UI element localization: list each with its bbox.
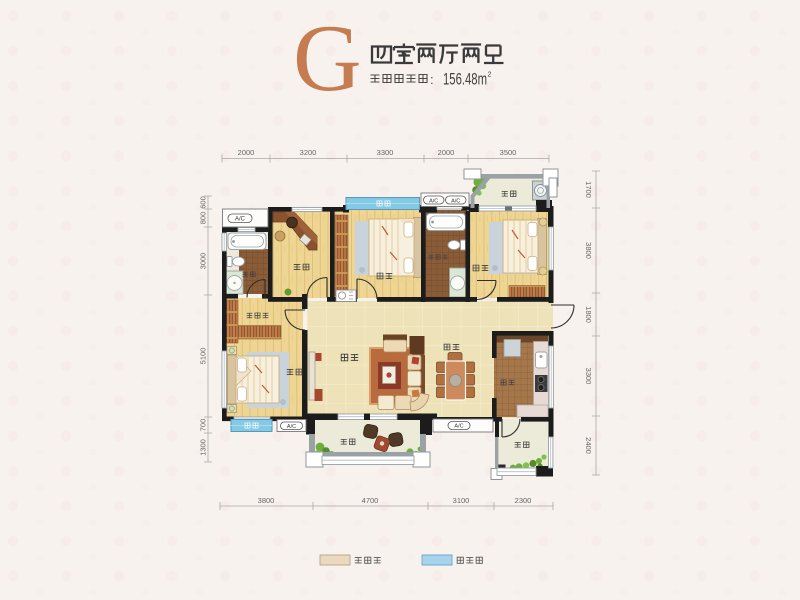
svg-text:600: 600 [199,196,208,209]
svg-text:5100: 5100 [199,348,208,365]
svg-text::: : [430,72,434,87]
svg-text:2000: 2000 [238,148,255,157]
svg-text:3200: 3200 [300,148,317,157]
svg-text:4700: 4700 [362,496,379,505]
svg-text:A/C: A/C [429,198,438,204]
svg-text:3800: 3800 [258,496,275,505]
svg-text:3300: 3300 [584,368,593,385]
svg-text:2: 2 [488,72,492,79]
svg-text:A/C: A/C [235,217,246,223]
svg-text:A/C: A/C [451,198,460,204]
svg-text:3000: 3000 [199,253,208,270]
svg-text:1700: 1700 [584,181,593,198]
svg-text:2300: 2300 [515,496,532,505]
svg-text:1300: 1300 [199,439,208,456]
svg-text:800: 800 [199,212,208,225]
svg-text:700: 700 [199,419,208,432]
svg-text:1800: 1800 [584,306,593,323]
svg-text:3100: 3100 [453,496,470,505]
svg-text:3800: 3800 [584,242,593,259]
svg-text:A/C: A/C [287,424,296,430]
svg-text:3300: 3300 [377,148,394,157]
svg-text:A/C: A/C [454,424,463,430]
svg-text:2000: 2000 [438,148,455,157]
svg-text:G: G [293,5,362,111]
svg-text:3500: 3500 [500,148,517,157]
svg-text:156.48m: 156.48m [443,70,487,89]
svg-text:2400: 2400 [584,437,593,454]
